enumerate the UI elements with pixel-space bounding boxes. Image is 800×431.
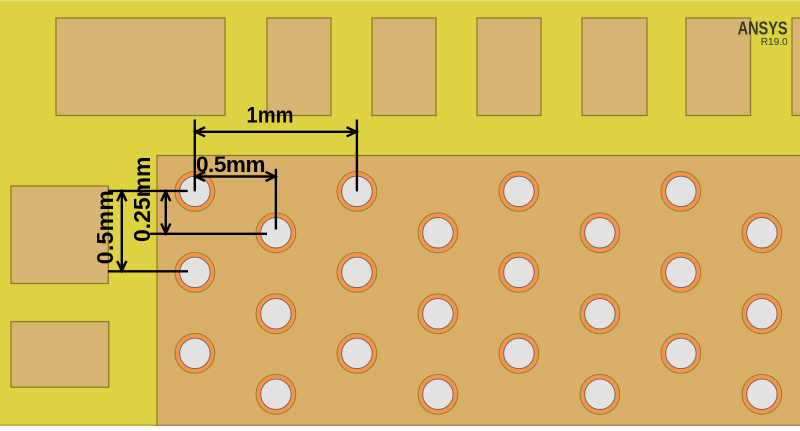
- svg-text:0.25mm: 0.25mm: [129, 157, 155, 243]
- svg-text:0.5mm: 0.5mm: [196, 152, 266, 177]
- svg-text:0.5mm: 0.5mm: [92, 190, 118, 264]
- svg-text:ANSYS: ANSYS: [738, 18, 788, 39]
- svg-text:1mm: 1mm: [247, 102, 294, 127]
- svg-text:R19.0: R19.0: [761, 37, 788, 48]
